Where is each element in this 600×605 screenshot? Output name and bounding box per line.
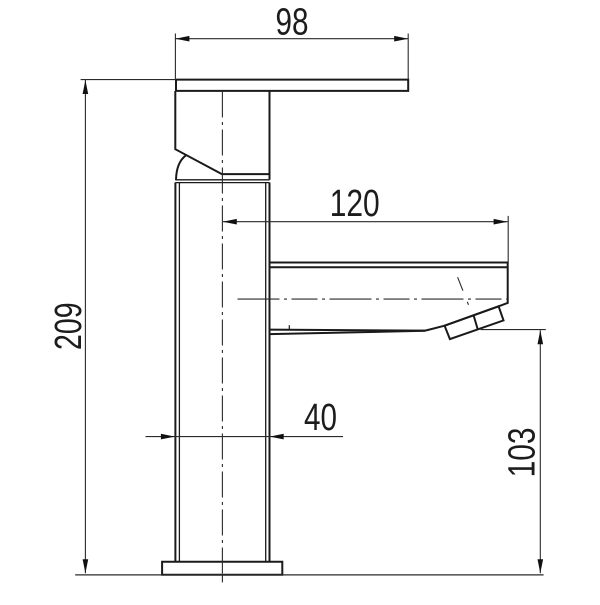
svg-text:103: 103	[502, 427, 544, 477]
svg-text:209: 209	[48, 302, 90, 350]
svg-text:98: 98	[276, 2, 309, 44]
svg-text:120: 120	[330, 183, 380, 225]
svg-text:40: 40	[304, 397, 337, 439]
